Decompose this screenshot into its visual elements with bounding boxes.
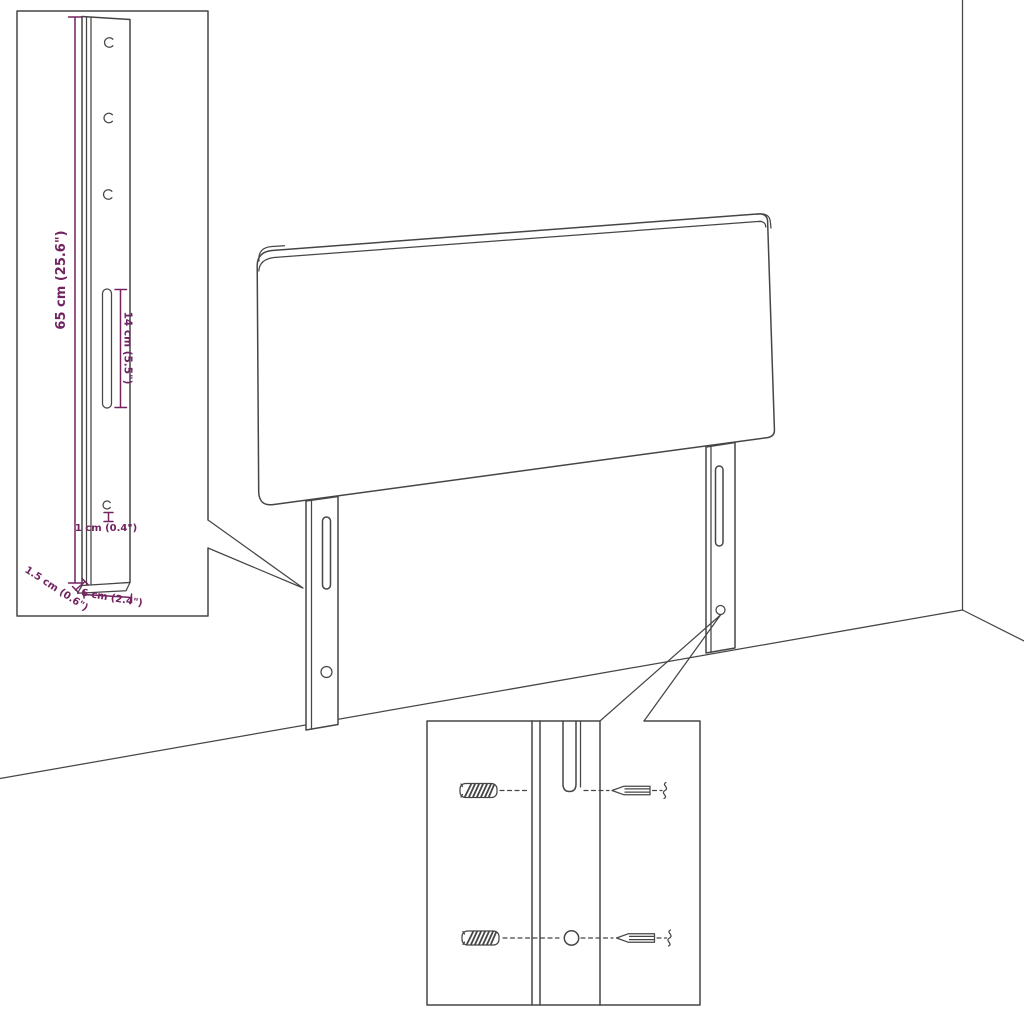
bracket-side-view: [78, 17, 131, 594]
leg-left-slot: [323, 517, 331, 589]
callout-bracket-leader-lines: [208, 520, 303, 588]
dim-hole-label: 1 cm (0.4"): [75, 523, 137, 534]
headboard-leg-right: [706, 443, 735, 654]
floor-line-right: [963, 610, 1024, 641]
dim-height-label: 65 cm (25.6"): [54, 230, 69, 329]
bracket-slot: [103, 289, 112, 408]
panel-front-face: [257, 214, 774, 505]
headboard-panel: [257, 214, 774, 505]
headboard-leg-left: [306, 497, 338, 731]
headboard: [257, 214, 774, 730]
diagram-canvas: 65 cm (25.6") 14 cm (5.5") 1 cm (0.4") 1…: [0, 0, 1024, 1024]
product-diagram: 65 cm (25.6") 14 cm (5.5") 1 cm (0.4") 1…: [0, 0, 1024, 1024]
dim-slot-label: 14 cm (5.5"): [122, 312, 134, 385]
callout-hardware-detail: [427, 615, 721, 1005]
callout-hardware-leader-lines: [600, 615, 721, 721]
leg-right-slot: [716, 466, 724, 546]
